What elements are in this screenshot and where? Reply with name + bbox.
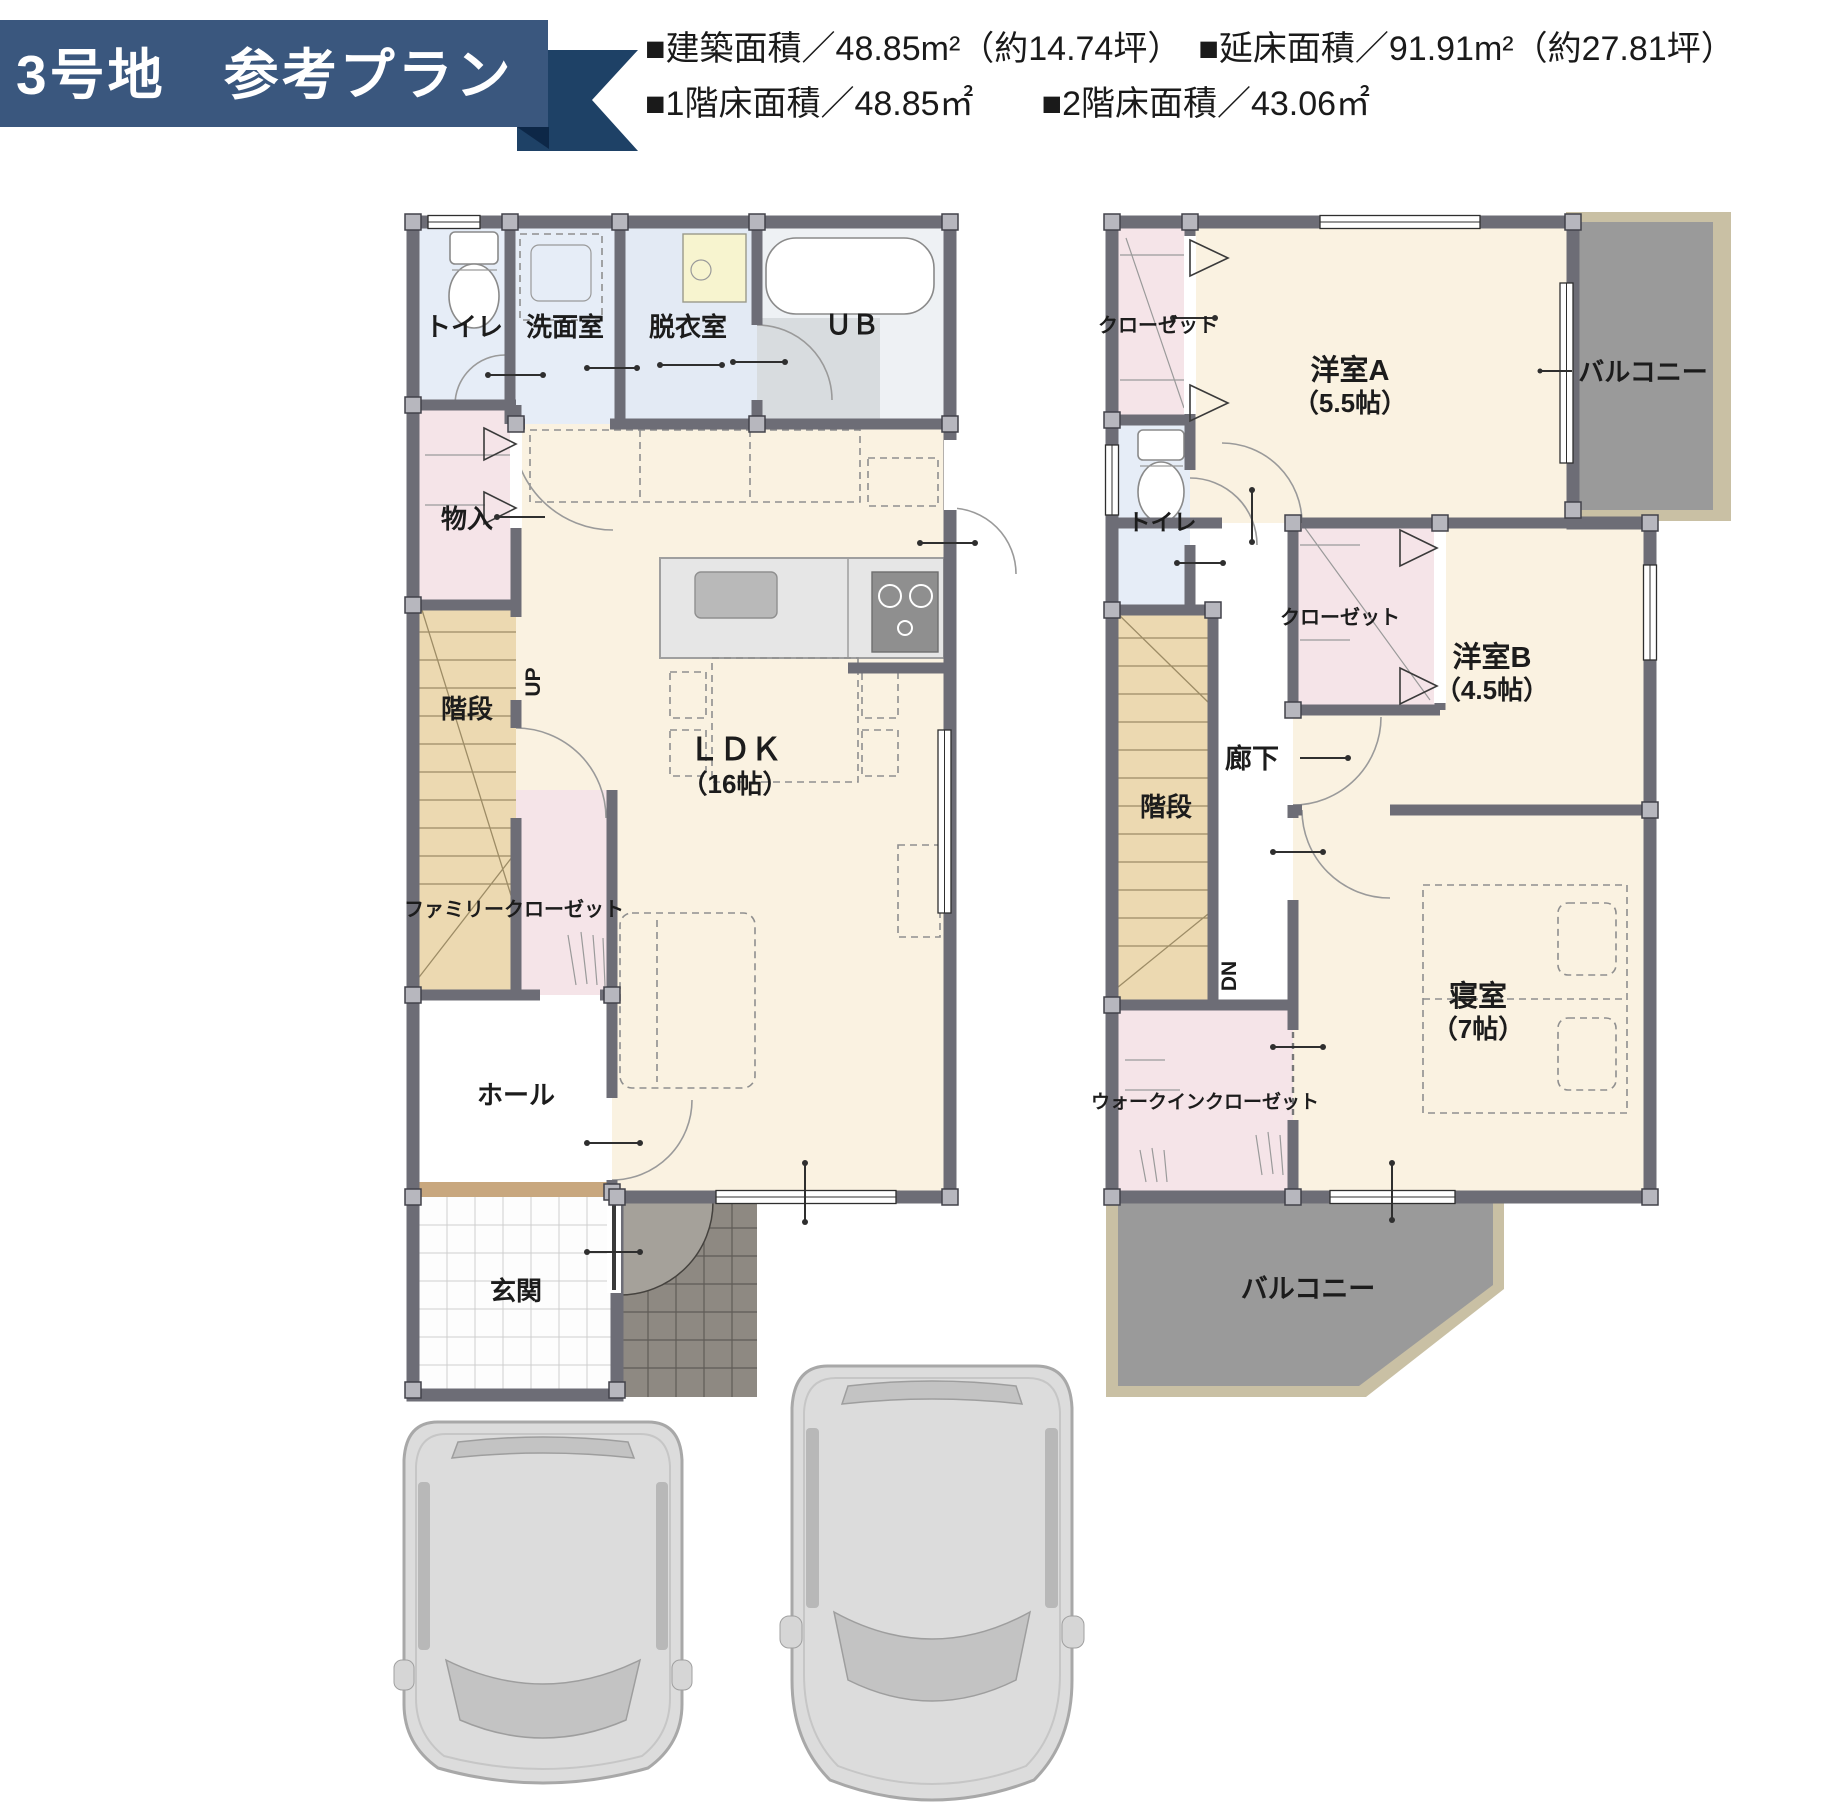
entrance-porch (620, 1200, 757, 1397)
label-stairs-2f: 階段 (1140, 792, 1192, 822)
car-small-right-mirror (672, 1660, 692, 1690)
label-dn: DN (1218, 961, 1241, 991)
label-western-a-size: （5.5帖） (1293, 388, 1407, 418)
label-corridor: 廊下 (1225, 743, 1279, 774)
car-large (780, 1366, 1084, 1800)
label-hall: ホール (477, 1080, 555, 1110)
bathtub-fixture (766, 238, 934, 314)
label-bedroom-size: （7帖） (1432, 1014, 1524, 1044)
washer-space (683, 234, 746, 302)
kitchen-sink (695, 572, 777, 618)
floorplan-page: { "banner": { "title": "3号地 参考プラン" }, "s… (0, 0, 1844, 1802)
car-small (394, 1422, 692, 1783)
car-large-right-mirror (1062, 1616, 1084, 1648)
label-balcony-bottom: バルコニー (1241, 1274, 1375, 1304)
car-large-left-mirror (780, 1616, 802, 1648)
label-bedroom: 寝室 (1449, 979, 1507, 1013)
entry-step (419, 1182, 608, 1197)
car-small-right-windows (656, 1482, 668, 1650)
banner-title-text: 3号地 参考プラン (16, 44, 514, 106)
car-small-left-mirror (394, 1660, 414, 1690)
label-western-a: 洋室A (1311, 353, 1390, 387)
label-closet-a: クローゼット (1098, 313, 1218, 337)
label-entrance: 玄関 (490, 1276, 542, 1306)
label-up: UP (522, 667, 545, 696)
stats-line1: ■建築面積／48.85m²（約14.74坪） ■延床面積／91.91m²（約27… (645, 30, 1735, 68)
floorplan-canvas: トイレ 洗面室 脱衣室 ＵＢ 物入 階段 UP ファミリークローゼット ＬＤＫ … (0, 0, 1844, 1802)
label-balcony-top: バルコニー (1578, 357, 1707, 387)
label-toilet-2f: トイレ (1128, 509, 1197, 535)
stats-line2: ■1階床面積／48.85㎡ ■2階床面積／43.06㎡ (645, 85, 1370, 123)
kitchen-stove (872, 572, 938, 652)
label-ldk-size: （16帖） (682, 769, 789, 799)
label-stairs-1f: 階段 (441, 694, 493, 724)
label-western-b: 洋室B (1453, 640, 1532, 674)
back-door-opening (944, 440, 957, 510)
car-small-left-windows (418, 1482, 430, 1650)
label-wic: ウォークインクローゼット (1091, 1090, 1319, 1113)
label-bath: ＵＢ (825, 310, 879, 340)
label-closet-b: クローゼット (1280, 605, 1400, 629)
label-dressing: 脱衣室 (649, 312, 727, 342)
label-family-closet: ファミリークローゼット (404, 897, 624, 921)
label-toilet-1f: トイレ (425, 312, 503, 342)
label-storage: 物入 (441, 504, 493, 534)
storage-door-opening (510, 428, 522, 528)
car-large-right-windows (1045, 1428, 1058, 1608)
label-western-b-size: （4.5帖） (1435, 675, 1549, 705)
car-large-left-windows (806, 1428, 819, 1608)
room-family-closet (516, 790, 612, 995)
label-ldk: ＬＤＫ (689, 732, 782, 767)
label-washroom: 洗面室 (526, 312, 604, 342)
